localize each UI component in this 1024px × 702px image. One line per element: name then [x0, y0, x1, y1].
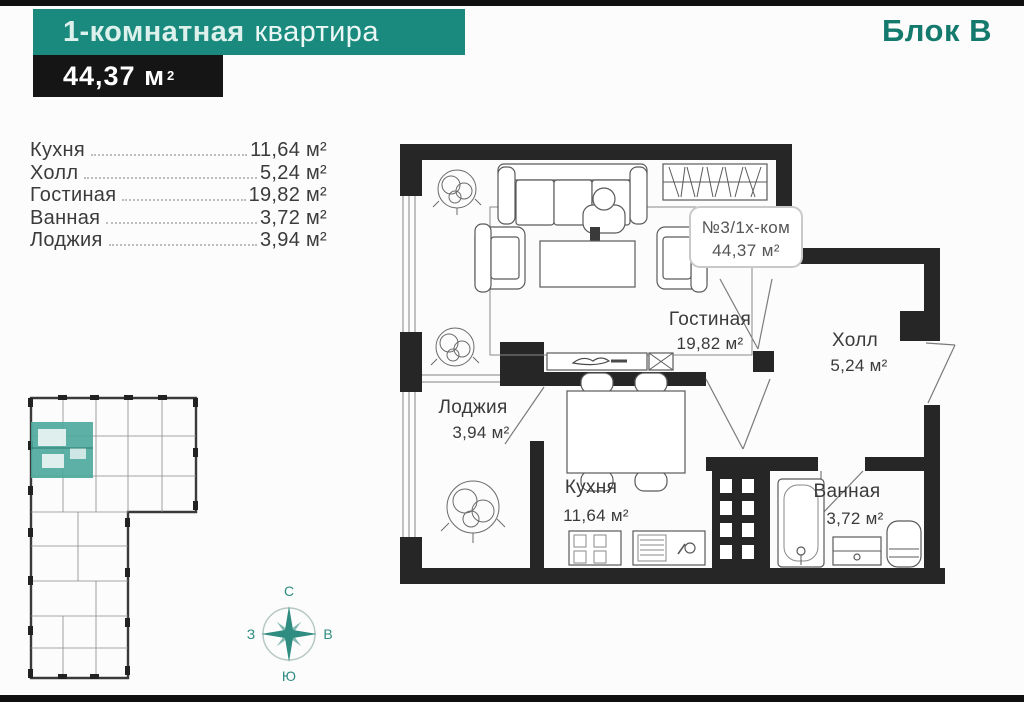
washing-machine [887, 521, 921, 567]
svg-text:3,72 м²: 3,72 м² [826, 509, 883, 528]
console-shelf [547, 353, 673, 370]
compass-rose: С В Ю З [242, 582, 337, 684]
svg-text:3,94 м²: 3,94 м² [452, 423, 509, 442]
building-plan-thumbnail [28, 386, 203, 686]
svg-text:Кухня: Кухня [565, 477, 617, 498]
room-area-row: Кухня 11,64 м² [30, 139, 327, 162]
room-name: Кухня [30, 139, 85, 162]
bathroom-sink [833, 537, 881, 565]
svg-text:19,82 м²: 19,82 м² [676, 334, 743, 353]
room-label-hall: Холл 5,24 м² [830, 330, 887, 375]
unit-area: 44,37 м² [712, 241, 780, 260]
room-label-kitchen: Кухня 11,64 м² [563, 477, 629, 525]
apartment-type-bold: 1-комнатная [63, 16, 245, 49]
door-entrance [926, 343, 955, 403]
plant [441, 481, 505, 543]
door-hall-kitchen [706, 379, 770, 449]
compass-east-label: В [323, 626, 332, 642]
dining-table [567, 373, 685, 491]
compass-star [261, 606, 317, 662]
total-area-value: 44,37 м [63, 61, 165, 92]
svg-text:Ванная: Ванная [814, 481, 881, 502]
ventilation-shaft [712, 471, 770, 568]
room-area-row: Ванная 3,72 м² [30, 207, 327, 230]
compass-south-label: Ю [282, 668, 296, 684]
compass-west-label: З [247, 626, 255, 642]
room-name: Лоджия [30, 229, 103, 252]
dotted-leader [106, 221, 257, 224]
dotted-leader [84, 176, 257, 179]
plant [431, 328, 479, 366]
svg-text:Гостиная: Гостиная [669, 309, 751, 330]
room-area: 5,24 м² [260, 162, 327, 185]
unit-number-badge: №3/1х-ком 44,37 м² [690, 207, 802, 267]
dotted-leader [122, 198, 245, 201]
svg-text:11,64 м²: 11,64 м² [563, 506, 629, 525]
unit-number: №3/1х-ком [702, 218, 790, 237]
compass-north-label: С [284, 583, 294, 599]
total-area-badge: 44,37 м2 [33, 55, 223, 97]
room-area-row: Гостиная 19,82 м² [30, 184, 327, 207]
dotted-leader [109, 243, 257, 246]
room-area: 3,94 м² [260, 229, 327, 252]
kitchen-sink [633, 531, 705, 565]
room-label-living: Гостиная 19,82 м² [669, 309, 751, 353]
coffee-table [540, 241, 635, 287]
room-label-loggia: Лоджия 3,94 м² [438, 397, 509, 442]
room-area-row: Лоджия 3,94 м² [30, 229, 327, 252]
stove [569, 531, 621, 565]
svg-text:Холл: Холл [832, 330, 878, 351]
block-label: Блок В [742, 13, 992, 49]
apartment-type-regular: квартира [255, 16, 379, 49]
room-name: Ванная [30, 207, 100, 230]
room-area: 3,72 м² [260, 207, 327, 230]
plant [433, 170, 481, 215]
photo-border-bottom [0, 695, 1024, 702]
room-name: Холл [30, 162, 78, 185]
room-area: 11,64 м² [250, 139, 327, 162]
room-area-list: Кухня 11,64 м² Холл 5,24 м² Гостиная 19,… [30, 139, 327, 252]
door-loggia [505, 387, 544, 444]
svg-text:Лоджия: Лоджия [438, 397, 507, 418]
armchair-left [475, 224, 525, 292]
svg-text:5,24 м²: 5,24 м² [830, 356, 887, 375]
room-name: Гостиная [30, 184, 116, 207]
apartment-type-banner: 1-комнатная квартира [33, 9, 465, 55]
room-area: 19,82 м² [249, 184, 327, 207]
room-area-row: Холл 5,24 м² [30, 162, 327, 185]
floor-plan: №3/1х-ком 44,37 м² Гостиная 19,82 м² Хол… [395, 139, 960, 599]
wardrobe [663, 164, 767, 200]
highlighted-unit [31, 422, 93, 478]
dotted-leader [91, 153, 247, 156]
photo-border-top [0, 0, 1024, 6]
